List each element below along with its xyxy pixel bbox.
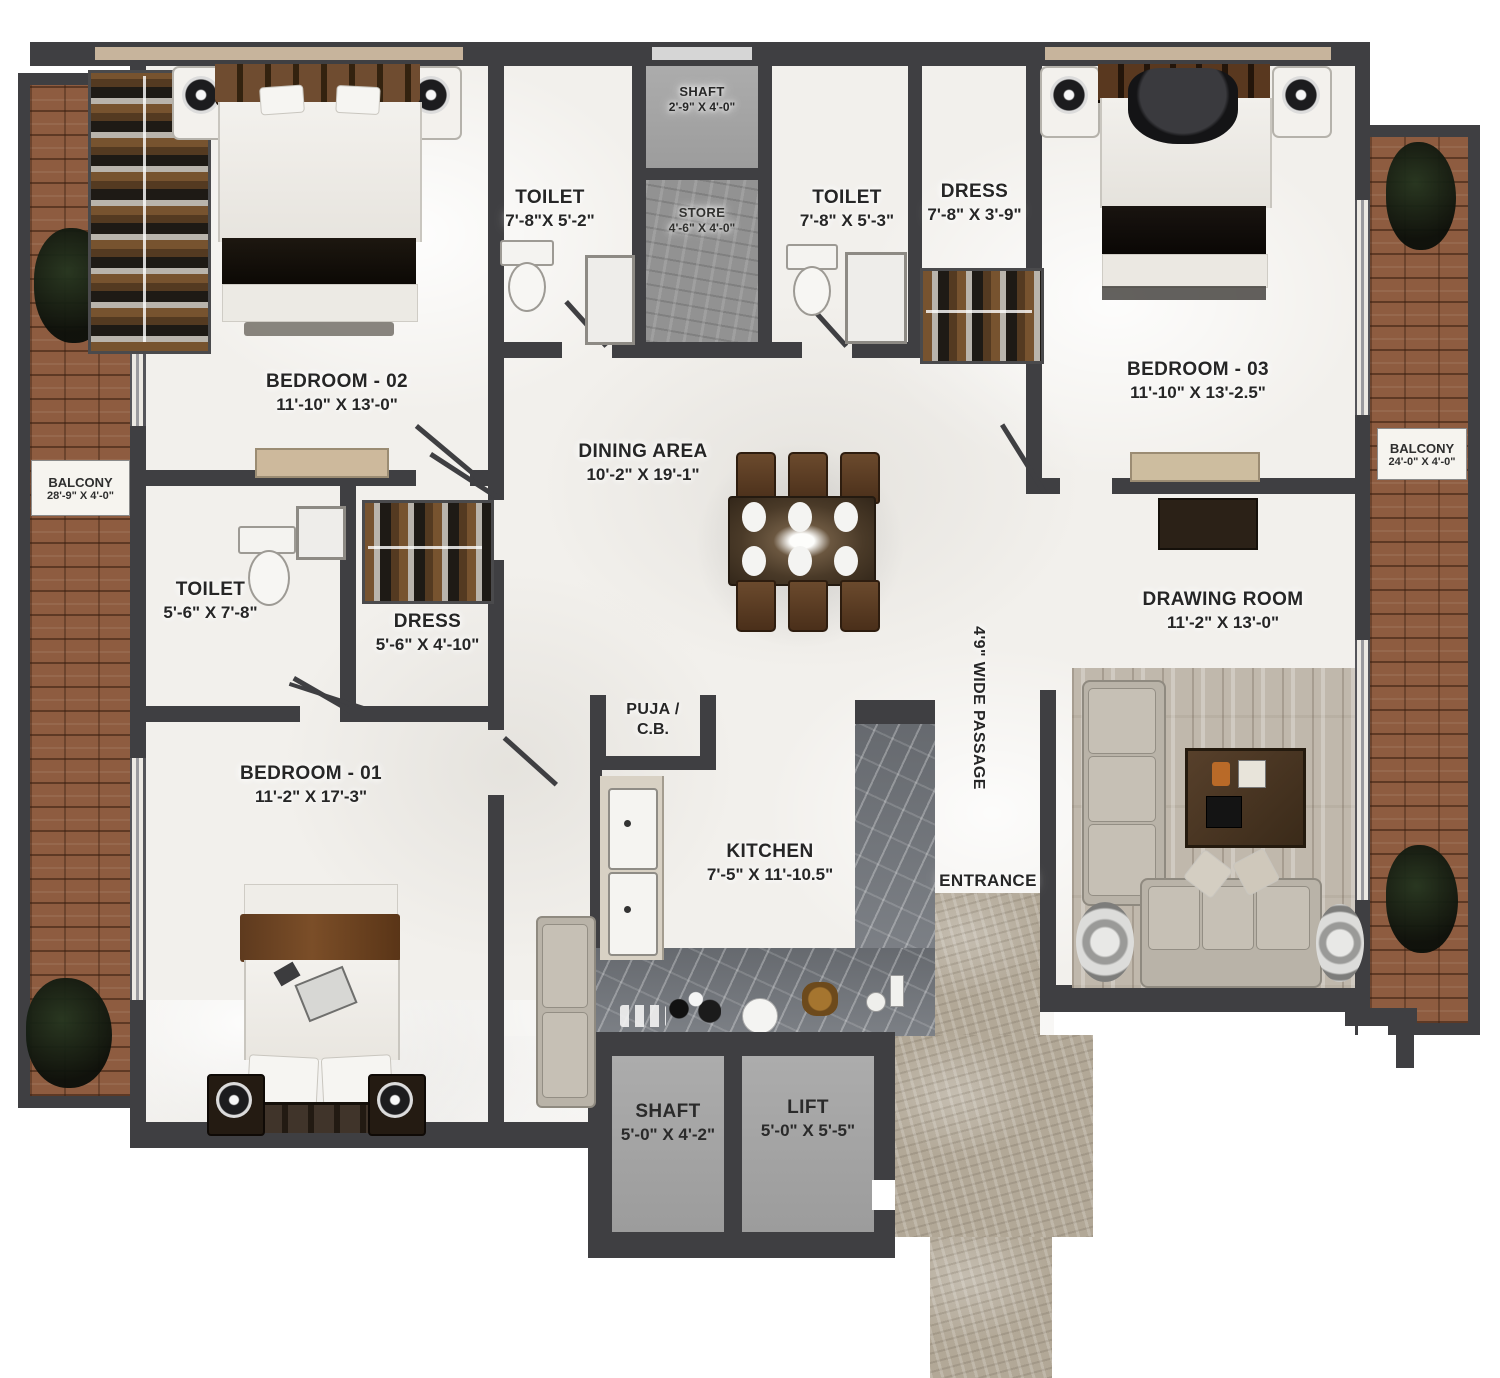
counter-plate — [742, 998, 778, 1034]
toilet-mid-basin — [296, 506, 346, 560]
passage-name: 4'9" WIDE PASSAGE — [968, 578, 988, 838]
bedroom-02-pillow-right — [335, 85, 380, 115]
stove-burners — [620, 1005, 666, 1027]
balcony-left-outer-wall — [18, 73, 30, 1108]
shaft-top-box — [646, 66, 758, 170]
kitchen-sink-1 — [608, 788, 658, 870]
dress-top-right-dims: 7'-8" X 3'-9" — [902, 204, 1047, 225]
drawing-room-window — [1355, 640, 1370, 900]
dining-plate-1 — [742, 502, 766, 532]
sofa-cushion-1 — [1148, 886, 1200, 950]
bedroom-01-blanket — [240, 914, 400, 962]
bedroom-02-bed-body — [218, 102, 422, 242]
drawing-room-side-table-right — [1316, 904, 1364, 982]
dress-mid-left-rail — [368, 546, 482, 549]
dress-mid-left-wardrobe — [362, 500, 494, 604]
bedroom-03-foot-runner — [1102, 286, 1266, 300]
store-label: STORE 4'-6" X 4'-0" — [642, 205, 762, 236]
kitchen-side-counter-cap — [855, 700, 935, 724]
wall-drawing-left — [1040, 690, 1056, 1000]
top-wall-shaft-vent — [652, 47, 752, 60]
dining-chair-4 — [736, 580, 776, 632]
balcony-right-name: BALCONY — [1378, 441, 1466, 456]
lift-name: LIFT — [738, 1096, 878, 1120]
toilet-mid-left-name: TOILET — [138, 578, 283, 602]
toilet-mid-left-dims: 5'-6" X 7'-8" — [138, 602, 283, 623]
dress-top-right-name: DRESS — [902, 180, 1047, 204]
puja-name-2: C.B. — [592, 720, 714, 740]
bedroom-02-dims: 11'-10" X 13'-0" — [222, 394, 452, 415]
bedroom-03-dims: 11'-10" X 13'-2.5" — [1076, 382, 1320, 403]
bedroom-03-label: BEDROOM - 03 11'-10" X 13'-2.5" — [1076, 358, 1320, 403]
entrance-walkway-middle — [895, 1035, 1093, 1237]
toilet-top-right-shower — [845, 252, 907, 344]
puja-name-1: PUJA / — [592, 700, 714, 720]
dining-plate-3 — [834, 502, 858, 532]
balcony-right-dims: 24'-0" X 4'-0" — [1378, 456, 1466, 468]
floor-plan: BALCONY 28'-9" X 4'-0" BALCONY 24'-0" X … — [0, 0, 1500, 1378]
dining-plate-2 — [788, 502, 812, 532]
drawing-room-label: DRAWING ROOM 11'-2" X 13'-0" — [1098, 588, 1348, 633]
dining-area-dims: 10'-2" X 19'-1" — [528, 464, 758, 485]
chaise-cushion-2 — [1088, 756, 1156, 822]
bedroom-01-lamp-right — [377, 1082, 413, 1118]
kitchen-sink-1-drain — [624, 820, 631, 827]
wall-spine-a — [488, 356, 504, 500]
dining-area-label: DINING AREA 10'-2" X 19'-1" — [528, 440, 758, 485]
entry-step-inner — [1358, 1026, 1388, 1050]
loveseat-cushion-1 — [542, 924, 588, 1008]
top-wall-window-left — [95, 47, 463, 60]
balcony-right-top-wall — [1370, 125, 1480, 137]
dress-mid-left-name: DRESS — [350, 610, 505, 634]
toilet-top-left-dims: 7'-8"X 5'-2" — [478, 210, 622, 231]
dining-chair-5 — [788, 580, 828, 632]
toilet-mid-left-label: TOILET 5'-6" X 7'-8" — [138, 578, 283, 623]
shaft-bottom-dims: 5'-0" X 4'-2" — [606, 1124, 730, 1145]
bedroom-02-name: BEDROOM - 02 — [222, 370, 452, 394]
kitchen-label: KITCHEN 7'-5" X 11'-10.5" — [660, 840, 880, 885]
kitchen-name: KITCHEN — [660, 840, 880, 864]
dress-mid-left-label: DRESS 5'-6" X 4'-10" — [350, 610, 505, 655]
drawing-room-bottom-wall — [1040, 985, 1370, 1012]
toilet-top-right-dims: 7'-8" X 5'-3" — [772, 210, 922, 231]
bedroom-02-blanket — [222, 238, 416, 284]
bedroom-03-lamp-left — [1050, 76, 1088, 114]
bedroom-01-bed-foot-top — [244, 884, 398, 918]
toilet-top-right-name: TOILET — [772, 186, 922, 210]
shaft-bottom-label: SHAFT 5'-0" X 4'-2" — [606, 1100, 730, 1145]
entry-step-wall-v — [1396, 1008, 1414, 1068]
lift-dims: 5'-0" X 5'-5" — [738, 1120, 878, 1141]
wall-bedroom01-top-b — [356, 706, 504, 722]
bedroom-01-label: BEDROOM - 01 11'-2" X 17'-3" — [196, 762, 426, 807]
coffee-table-tray — [1238, 760, 1266, 788]
lift-door-notch — [872, 1180, 895, 1210]
dining-plate-4 — [742, 546, 766, 576]
drawing-room-console — [1158, 498, 1258, 550]
toilet-top-left-wc-bowl — [508, 262, 546, 312]
counter-cup — [866, 992, 886, 1012]
puja-back-wall — [590, 756, 716, 770]
wall-bedroom01-top-a — [130, 706, 300, 722]
shaft-top-bottom-wall — [646, 168, 758, 180]
bedroom-02-dresser — [255, 448, 389, 478]
balcony-right-plant-top — [1386, 142, 1456, 250]
sofa-cushion-3 — [1256, 886, 1310, 950]
bedroom-02-foot-bench — [244, 322, 394, 336]
toilet-top-left-shower — [585, 255, 635, 345]
bedroom-03-bed-foot — [1102, 254, 1268, 288]
balcony-left-label: BALCONY 28'-9" X 4'-0" — [31, 460, 130, 516]
dining-plate-6 — [834, 546, 858, 576]
shaft-top-name: SHAFT — [640, 84, 764, 100]
lift-label: LIFT 5'-0" X 5'-5" — [738, 1096, 878, 1141]
bedroom-02-pillow-left — [259, 84, 305, 115]
toilet-top-right-label: TOILET 7'-8" X 5'-3" — [772, 186, 922, 231]
bedroom-01-name: BEDROOM - 01 — [196, 762, 426, 786]
balcony-right-label: BALCONY 24'-0" X 4'-0" — [1377, 428, 1467, 480]
balcony-left-plant-bottom — [26, 978, 112, 1088]
coffee-table-book — [1206, 796, 1242, 828]
lift-box — [742, 1056, 874, 1232]
bedroom-02-bed-foot — [222, 284, 418, 322]
entrance-walkway-lower — [930, 1237, 1052, 1378]
bedroom-03-name: BEDROOM - 03 — [1076, 358, 1320, 382]
balcony-left-dims: 28'-9" X 4'-0" — [32, 490, 129, 502]
dining-chair-6 — [840, 580, 880, 632]
counter-bottles — [665, 980, 721, 1028]
store-dims: 4'-6" X 4'-0" — [642, 221, 762, 236]
counter-basket — [802, 982, 838, 1016]
bedroom-02-label: BEDROOM - 02 11'-10" X 13'-0" — [222, 370, 452, 415]
bedroom-01-window — [130, 758, 146, 1000]
toilet-top-right-wc-bowl — [793, 266, 831, 316]
bedroom-03-blanket — [1102, 206, 1266, 254]
bedroom-02-bed-headboard — [215, 64, 420, 107]
drawing-room-side-table-left — [1076, 902, 1134, 982]
wall-spine-c — [488, 795, 504, 1136]
passage-label: 4'9" WIDE PASSAGE — [968, 578, 988, 838]
loveseat-cushion-2 — [542, 1012, 588, 1098]
shaft-top-label: SHAFT 2'-9" X 4'-0" — [640, 84, 764, 115]
balcony-right-plant-bottom — [1386, 845, 1458, 953]
entrance-name: ENTRANCE — [918, 870, 1058, 891]
bedroom-03-canopy-light — [1128, 68, 1238, 144]
bedroom-03-lamp-right — [1282, 76, 1320, 114]
bedroom-01-lamp-left — [216, 1082, 252, 1118]
entrance-walkway-upper — [932, 893, 1040, 1035]
kitchen-side-counter — [855, 722, 935, 954]
wall-toprooms-bottom-b — [612, 342, 802, 358]
balcony-left-bottom-wall — [18, 1096, 140, 1108]
kitchen-dims: 7'-5" X 11'-10.5" — [660, 864, 880, 885]
counter-board — [890, 975, 904, 1007]
drawing-room-dims: 11'-2" X 13'-0" — [1098, 612, 1348, 633]
bedroom-03-foot-bench — [1130, 452, 1260, 482]
dress-mid-left-dims: 5'-6" X 4'-10" — [350, 634, 505, 655]
bedroom-03-window — [1355, 200, 1370, 415]
store-name: STORE — [642, 205, 762, 221]
dress-top-right-wardrobe — [920, 268, 1044, 364]
coffee-table-decor — [1212, 762, 1230, 786]
balcony-right-outer-wall — [1468, 125, 1480, 1035]
shaft-top-dims: 2'-9" X 4'-0" — [640, 100, 764, 115]
dress-top-right-rail — [926, 310, 1032, 313]
entrance-label: ENTRANCE — [918, 870, 1058, 891]
shaft-bottom-name: SHAFT — [606, 1100, 730, 1124]
dining-plate-5 — [788, 546, 812, 576]
dress-top-right-label: DRESS 7'-8" X 3'-9" — [902, 180, 1047, 225]
puja-label: PUJA / C.B. — [592, 700, 714, 740]
chaise-cushion-1 — [1088, 688, 1156, 754]
bedroom-02-wardrobe-rail — [143, 76, 146, 342]
drawing-room-name: DRAWING ROOM — [1098, 588, 1348, 612]
top-wall-window-right — [1045, 47, 1331, 60]
toilet-top-left-label: TOILET 7'-8"X 5'-2" — [478, 186, 622, 231]
dining-area-name: DINING AREA — [528, 440, 758, 464]
kitchen-sink-2 — [608, 872, 658, 956]
balcony-left-name: BALCONY — [32, 475, 129, 490]
kitchen-sink-2-drain — [624, 906, 631, 913]
toilet-top-left-name: TOILET — [478, 186, 622, 210]
bedroom-01-dims: 11'-2" X 17'-3" — [196, 786, 426, 807]
